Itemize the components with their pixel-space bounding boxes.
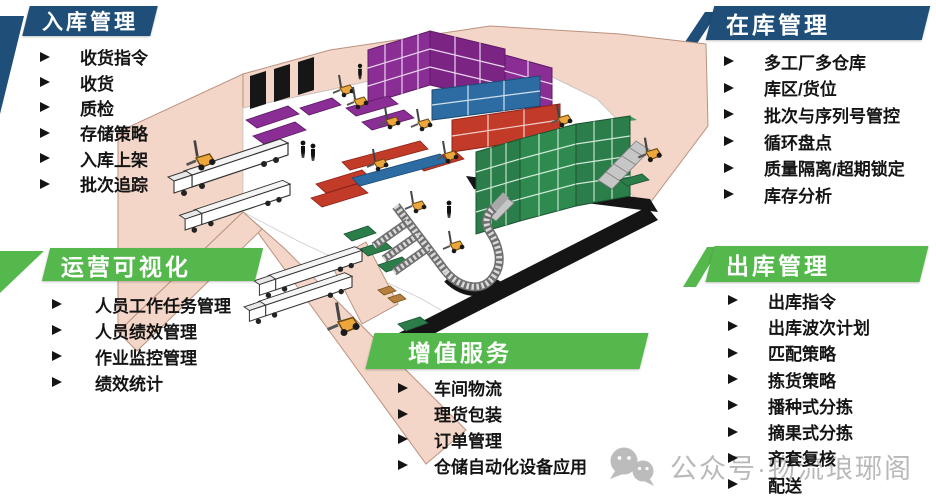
list-item: 作业监控管理 (46, 343, 306, 369)
panel-operations-visibility-header: 运营可视化 (42, 248, 263, 281)
arrow-bullet-icon (724, 163, 734, 173)
dock-door (274, 64, 290, 102)
list-item: 订单管理 (370, 427, 670, 453)
list-item: 出库指令 (710, 287, 936, 313)
panel-value-added-services-header: 增值服务 (366, 333, 649, 369)
arrow-bullet-icon (52, 351, 62, 361)
arrow-bullet-icon (728, 295, 738, 305)
panel-in-stock-header: 在库管理 (706, 6, 930, 40)
panel-value-added-services-list: 车间物流 理货包装 订单管理 仓储自动化设备应用 (370, 375, 670, 478)
panel-title: 在库管理 (726, 6, 830, 40)
dock-door (298, 57, 314, 95)
ribbon-tail-inbound (0, 16, 24, 114)
list-item: 批次与序列号管控 (710, 101, 936, 128)
arrow-bullet-icon (728, 427, 738, 437)
panel-in-stock: 在库管理 多工厂多仓库 库区/货位 批次与序列号管控 循环盘点 质量隔离/超期锁… (710, 6, 936, 208)
arrow-bullet-icon (728, 400, 738, 410)
list-item: 理货包装 (370, 401, 670, 427)
arrow-bullet-icon (40, 179, 50, 189)
arrow-bullet-icon (40, 153, 50, 163)
arrow-bullet-icon (724, 56, 734, 66)
panel-operations-visibility-list: 人员工作任务管理 人员绩效管理 作业监控管理 绩效统计 (46, 291, 306, 395)
panel-outbound: 出库管理 出库指令 出库波次计划 匹配策略 拣货策略 播种式分拣 摘果式分拣 齐… (710, 246, 936, 497)
list-item: 批次追踪 (26, 171, 256, 196)
list-item: 循环盘点 (710, 128, 936, 155)
panel-title: 入库管理 (42, 6, 138, 36)
panel-inbound-header: 入库管理 (22, 6, 157, 36)
panel-operations-visibility: 运营可视化 人员工作任务管理 人员绩效管理 作业监控管理 绩效统计 (46, 248, 306, 395)
list-item: 质量隔离/超期锁定 (710, 154, 936, 181)
list-item: 匹配策略 (710, 340, 936, 366)
panel-in-stock-list: 多工厂多仓库 库区/货位 批次与序列号管控 循环盘点 质量隔离/超期锁定 库存分… (710, 48, 936, 208)
arrow-bullet-icon (724, 189, 734, 199)
panel-outbound-header: 出库管理 (706, 246, 929, 282)
arrow-bullet-icon (40, 102, 50, 112)
list-item: 摘果式分拣 (710, 418, 936, 444)
arrow-bullet-icon (728, 321, 738, 331)
arrow-bullet-icon (398, 383, 408, 393)
panel-inbound-list: 收货指令 收货 质检 存储策略 入库上架 批次追踪 (26, 44, 256, 196)
panel-outbound-list: 出库指令 出库波次计划 匹配策略 拣货策略 播种式分拣 摘果式分拣 齐套复核 配… (710, 287, 936, 497)
arrow-bullet-icon (398, 460, 408, 470)
arrow-bullet-icon (728, 453, 738, 463)
list-item: 出库波次计划 (710, 313, 936, 339)
panel-title: 运营可视化 (61, 248, 191, 282)
list-item: 播种式分拣 (710, 392, 936, 418)
panel-value-added-services: 增值服务 车间物流 理货包装 订单管理 仓储自动化设备应用 (370, 333, 670, 478)
arrow-bullet-icon (724, 136, 734, 146)
arrow-bullet-icon (52, 377, 62, 387)
arrow-bullet-icon (52, 325, 62, 335)
list-item: 齐套复核 (710, 445, 936, 471)
arrow-bullet-icon (728, 348, 738, 358)
panel-title: 出库管理 (726, 247, 830, 281)
list-item: 入库上架 (26, 146, 256, 171)
list-item: 质检 (26, 95, 256, 120)
list-item: 人员绩效管理 (46, 317, 306, 343)
list-item: 收货 (26, 69, 256, 94)
list-item: 收货指令 (26, 44, 256, 69)
list-item: 车间物流 (370, 375, 670, 401)
list-item: 多工厂多仓库 (710, 48, 936, 75)
arrow-bullet-icon (398, 409, 408, 419)
list-item: 配送 (710, 471, 936, 497)
arrow-bullet-icon (40, 52, 50, 62)
list-item: 拣货策略 (710, 366, 936, 392)
panel-inbound: 入库管理 收货指令 收货 质检 存储策略 入库上架 批次追踪 (26, 6, 256, 196)
arrow-bullet-icon (398, 434, 408, 444)
list-item: 绩效统计 (46, 369, 306, 395)
list-item: 库区/货位 (710, 75, 936, 102)
ribbon-tail-ops (0, 251, 44, 293)
arrow-bullet-icon (40, 128, 50, 138)
arrow-bullet-icon (728, 479, 738, 489)
arrow-bullet-icon (52, 299, 62, 309)
list-item: 仓储自动化设备应用 (370, 452, 670, 478)
arrow-bullet-icon (40, 77, 50, 87)
list-item: 存储策略 (26, 120, 256, 145)
arrow-bullet-icon (728, 374, 738, 384)
arrow-bullet-icon (724, 83, 734, 93)
panel-title: 增值服务 (408, 334, 512, 368)
arrow-bullet-icon (724, 109, 734, 119)
list-item: 人员工作任务管理 (46, 291, 306, 317)
list-item: 库存分析 (710, 181, 936, 208)
